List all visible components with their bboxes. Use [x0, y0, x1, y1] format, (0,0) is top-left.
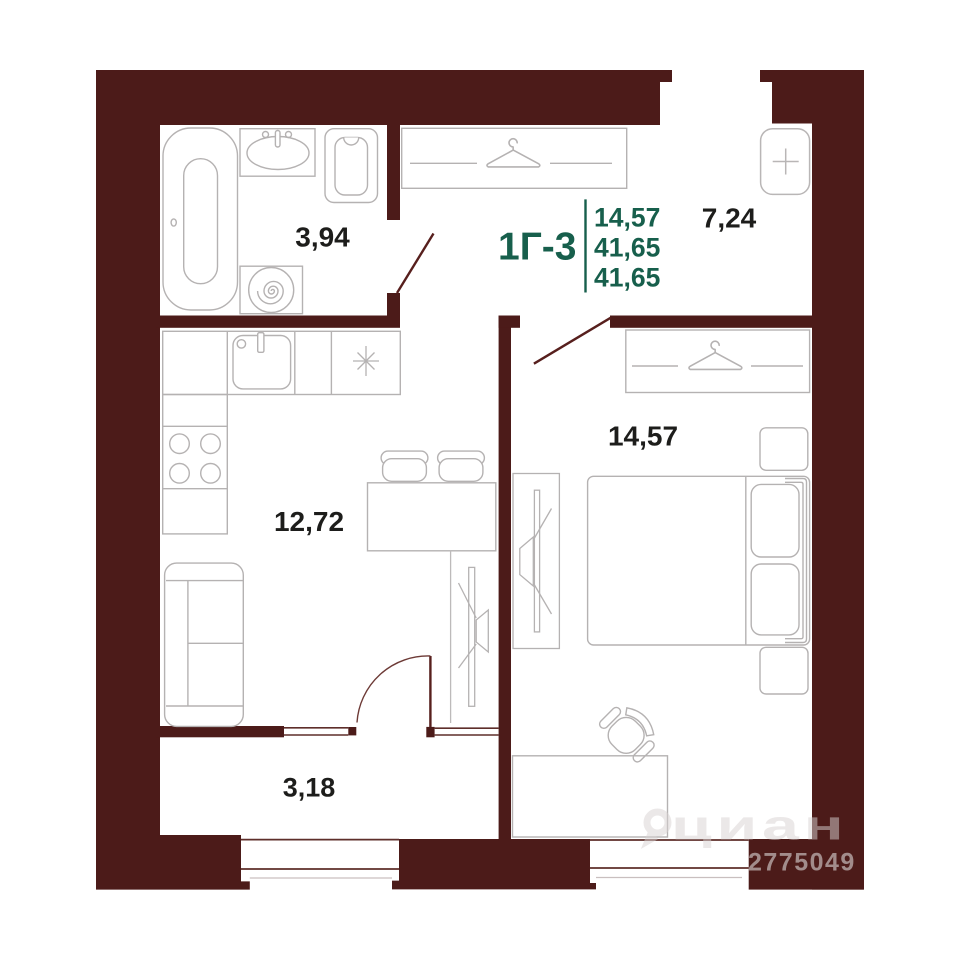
svg-text:3,18: 3,18 [283, 773, 336, 803]
svg-text:12,72: 12,72 [274, 506, 344, 537]
svg-text:1Г-3: 1Г-3 [498, 226, 576, 269]
svg-text:14,57: 14,57 [594, 202, 660, 232]
svg-text:41,65: 41,65 [594, 233, 660, 263]
svg-text:2775049: 2775049 [748, 849, 856, 877]
svg-text:7,24: 7,24 [702, 203, 757, 234]
svg-text:14,57: 14,57 [608, 421, 678, 452]
svg-text:3,94: 3,94 [295, 221, 350, 252]
svg-text:циан: циан [671, 802, 848, 849]
svg-text:41,65: 41,65 [594, 262, 660, 292]
